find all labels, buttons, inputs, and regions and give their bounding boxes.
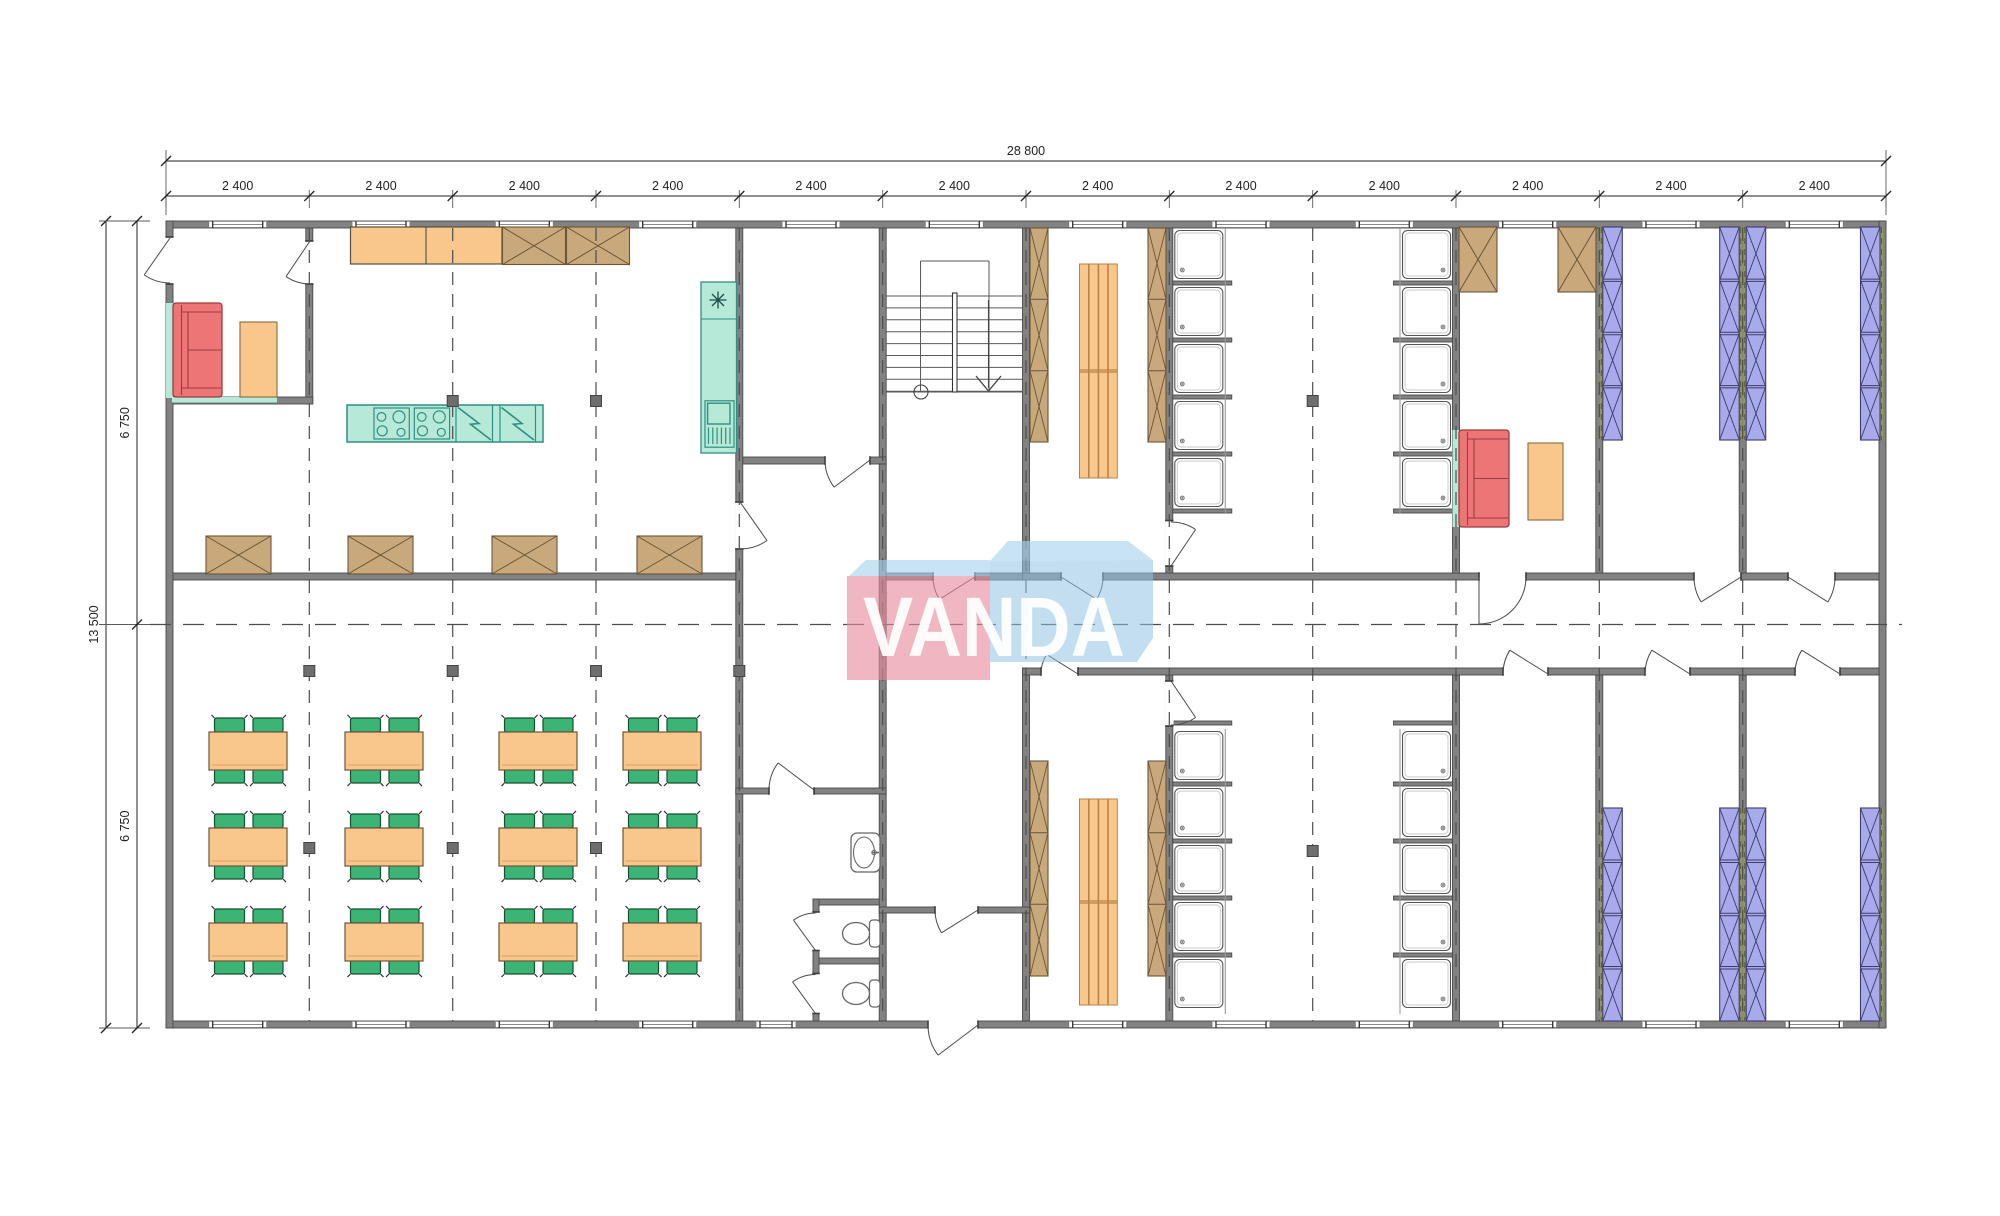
svg-text:2 400: 2 400: [1225, 179, 1256, 193]
svg-text:2 400: 2 400: [939, 179, 970, 193]
svg-text:VANDA: VANDA: [863, 580, 1125, 674]
svg-text:2 400: 2 400: [1512, 179, 1543, 193]
svg-text:2 400: 2 400: [509, 179, 540, 193]
svg-text:2 400: 2 400: [1082, 179, 1113, 193]
svg-text:13 500: 13 500: [87, 605, 101, 643]
svg-text:2 400: 2 400: [1655, 179, 1686, 193]
svg-text:6 750: 6 750: [118, 811, 132, 842]
svg-text:2 400: 2 400: [222, 179, 253, 193]
svg-text:2 400: 2 400: [795, 179, 826, 193]
svg-text:6 750: 6 750: [118, 407, 132, 438]
svg-text:2 400: 2 400: [1369, 179, 1400, 193]
svg-text:28 800: 28 800: [1007, 144, 1045, 158]
svg-text:2 400: 2 400: [652, 179, 683, 193]
svg-text:2 400: 2 400: [1799, 179, 1830, 193]
svg-text:2 400: 2 400: [365, 179, 396, 193]
